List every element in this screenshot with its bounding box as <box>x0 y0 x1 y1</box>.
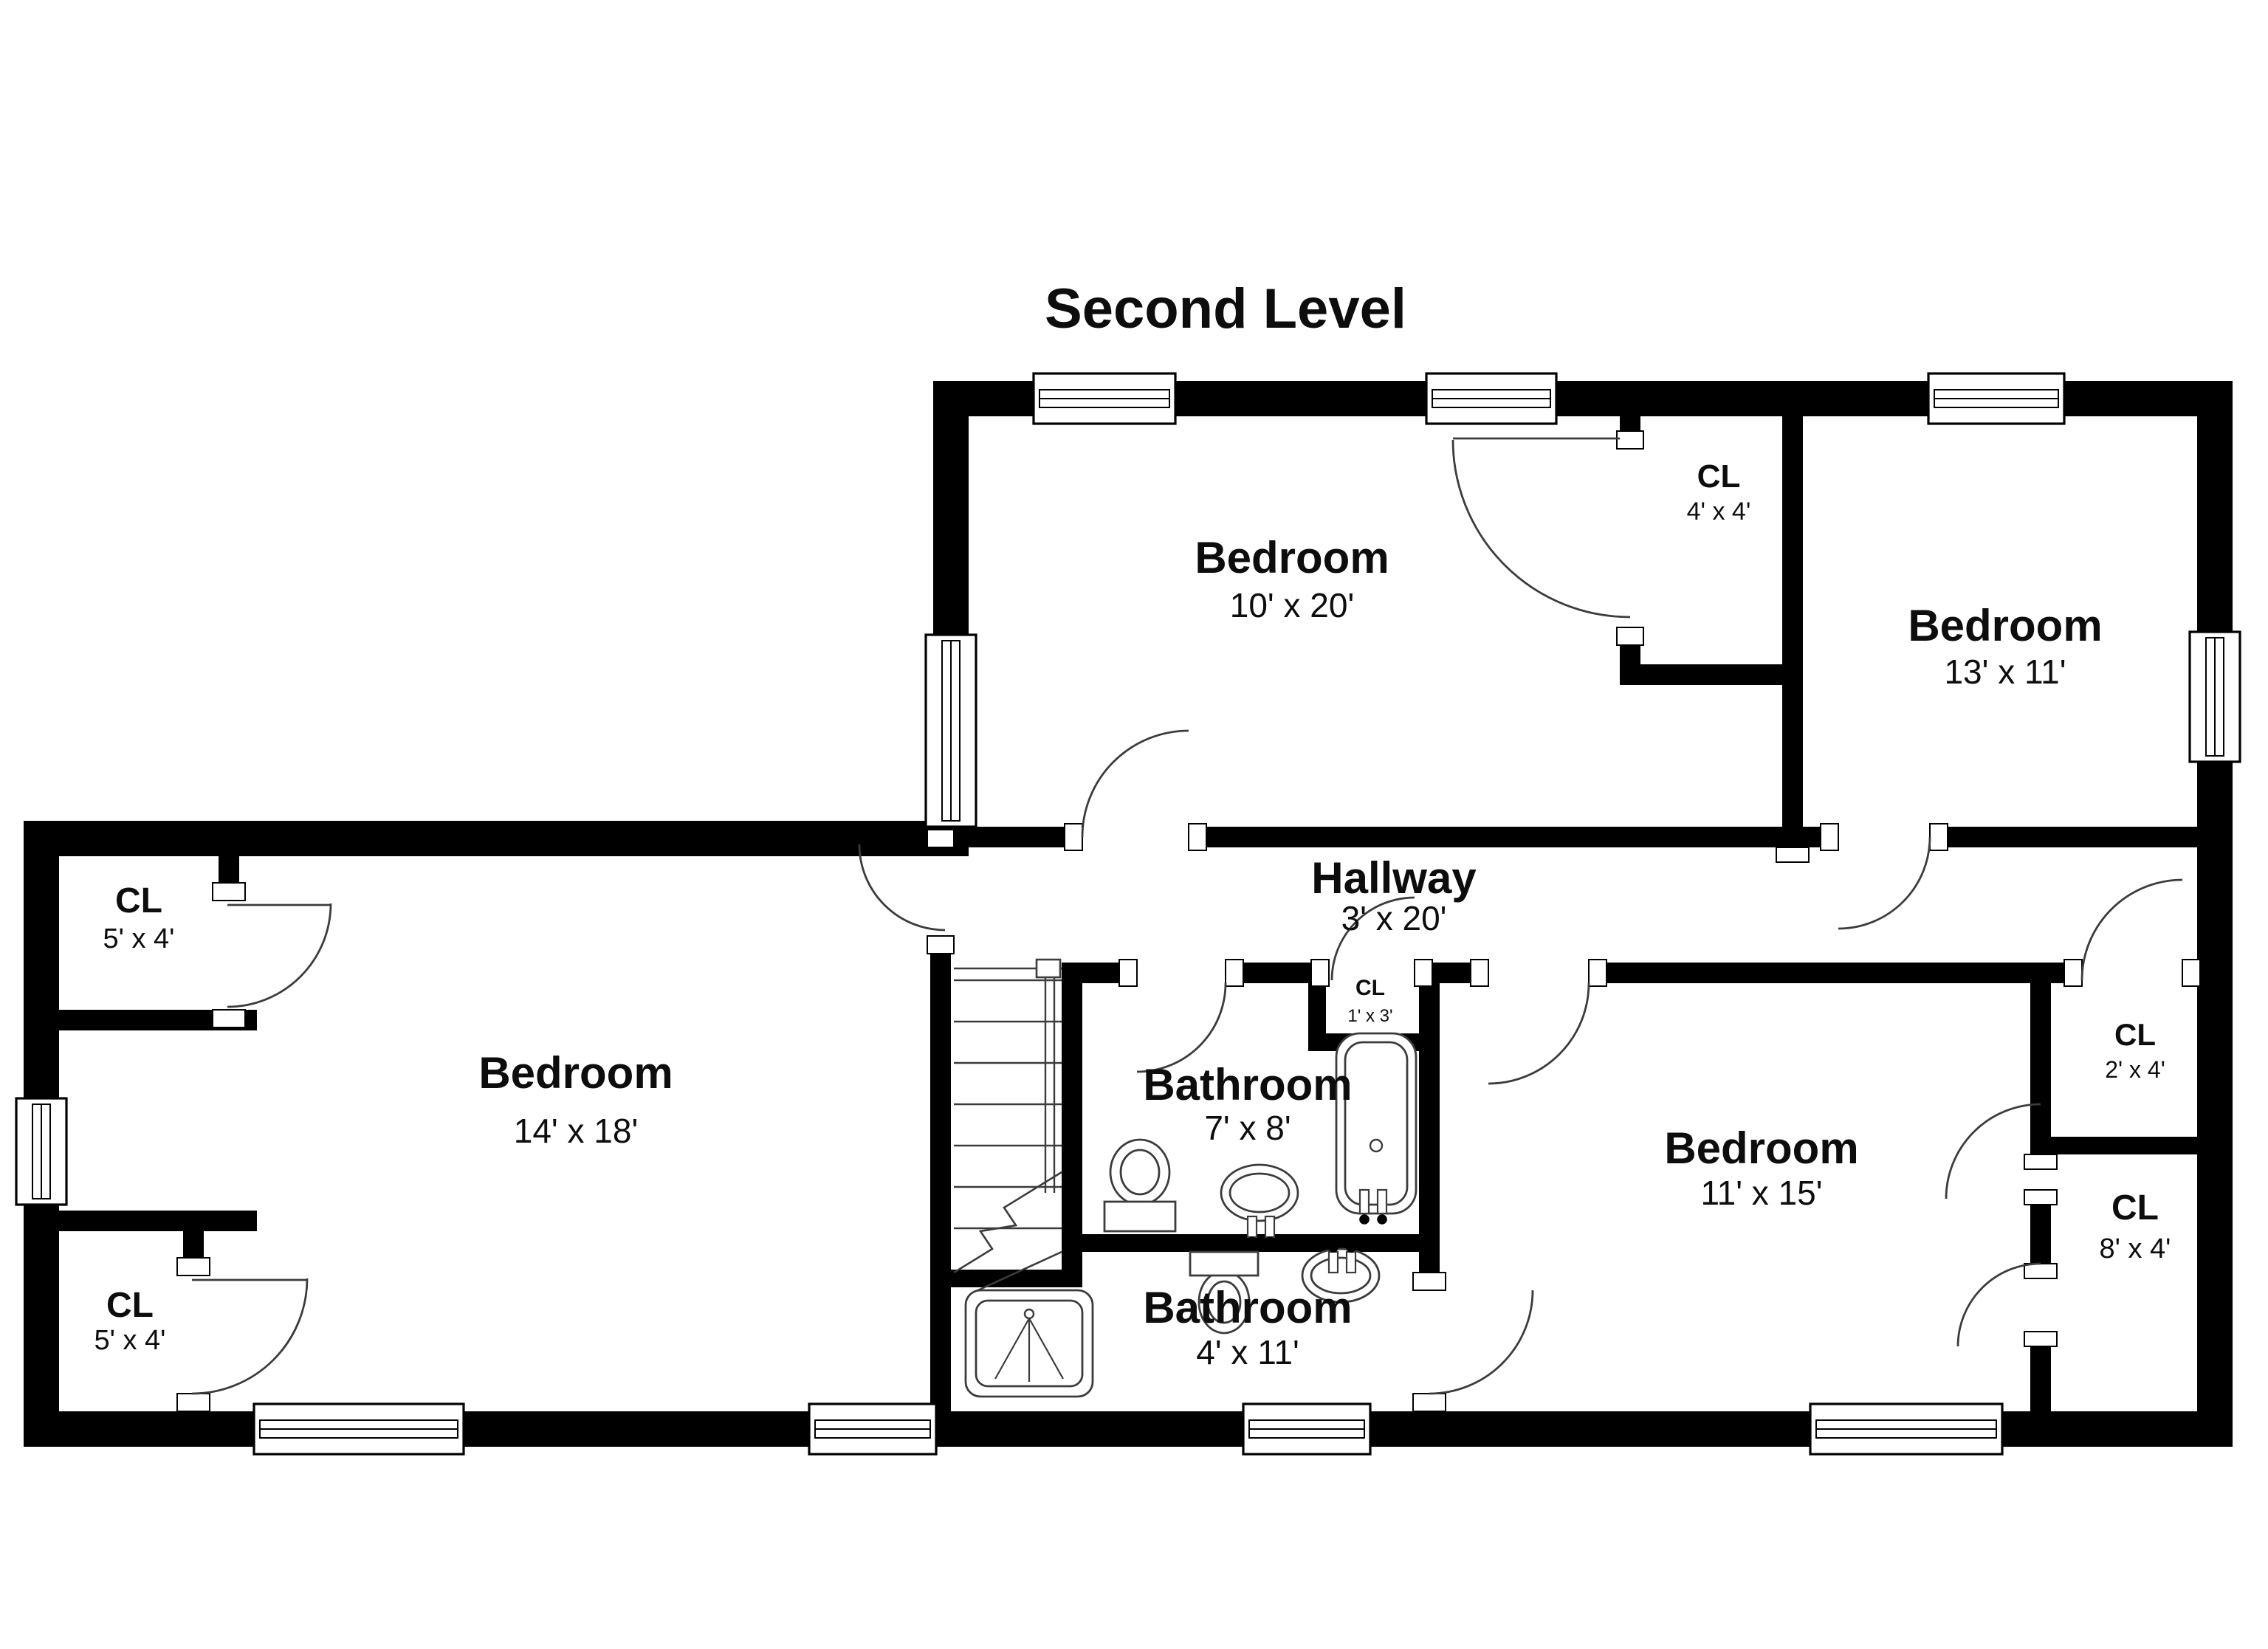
wall-cl4x4-bottom <box>1620 664 1803 685</box>
sink-bathroom-4x11-faucet <box>1329 1252 1338 1273</box>
sink-bathroom-4x11-faucet-dot <box>1346 1242 1356 1253</box>
room-dims-closet-2x4: 2' x 4' <box>2105 1056 2165 1083</box>
room-label-hallway: Hallway <box>1311 853 1477 903</box>
room-label-bedroom-top-right: Bedroom <box>1908 601 2102 650</box>
wall-cl8x4-left-b <box>2030 1346 2051 1411</box>
room-label-closet-4x4: CL <box>1697 458 1741 495</box>
door-jamb <box>2024 1190 2057 1205</box>
sink-bathroom-7x8-basin <box>1230 1174 1289 1212</box>
wall-stair-left-wall <box>930 936 951 1411</box>
room-dims-closet-5x4-bottom: 5' x 4' <box>94 1325 166 1356</box>
door-jamb <box>213 1010 245 1027</box>
sink-bathroom-7x8-faucet-dot <box>1265 1236 1275 1247</box>
sink-bathroom-4x11-faucet <box>1347 1252 1355 1273</box>
wall-outer-right <box>2197 381 2233 1447</box>
room-dims-bedroom-top-left: 10' x 20' <box>1230 586 1354 624</box>
plan-title: Second Level <box>1045 278 1406 340</box>
room-label-bedroom-top-left: Bedroom <box>1195 533 1389 582</box>
wall-bath-east-wall <box>1419 963 1440 1290</box>
door-jamb <box>2024 1264 2057 1278</box>
room-label-closet-8x4: CL <box>2111 1188 2159 1228</box>
door-jamb <box>2064 960 2082 986</box>
wall-cl4x4-left-b <box>1620 645 1640 664</box>
door-bedroom-13x11-swing-arc <box>1838 837 1930 929</box>
door-jamb <box>1413 1273 1446 1290</box>
door-closet-5x4-bottom-swing-arc <box>192 1278 307 1394</box>
room-dims-bedroom-top-right: 13' x 11' <box>1944 653 2066 691</box>
door-bedroom-10x20-swing-arc <box>1082 731 1189 837</box>
room-label-bathroom-7x8: Bathroom <box>1143 1060 1352 1109</box>
room-dims-closet-8x4: 8' x 4' <box>2100 1233 2171 1264</box>
door-jamb <box>213 883 245 901</box>
wall-stair-right-wall <box>1062 963 1082 1270</box>
room-dims-bathroom-7x8: 7' x 8' <box>1204 1109 1291 1147</box>
floorplan-sheet: Bedroom10' x 20'CL4' x 4'Bedroom13' x 11… <box>0 0 2268 1649</box>
wall-cl-bot-topwall <box>24 1211 257 1231</box>
door-jamb <box>1413 1394 1446 1411</box>
wall-cl2x4-bottom <box>2030 1137 2233 1154</box>
door-jamb <box>1776 847 1809 862</box>
bathtub-faucet-dot <box>1359 1214 1370 1225</box>
door-jamb <box>1119 960 1137 986</box>
room-label-bedroom-right: Bedroom <box>1664 1123 1858 1173</box>
wall-bath-divider <box>1082 1234 1440 1252</box>
room-dims-bedroom-right: 11' x 15' <box>1700 1174 1822 1212</box>
room-dims-closet-4x4: 4' x 4' <box>1687 498 1751 526</box>
door-jamb <box>1065 824 1082 850</box>
toilet-bathroom-7x8-bowl-inner <box>1121 1150 1159 1194</box>
door-closet-2x4-swing-arc <box>2082 880 2182 980</box>
floor-plan: Bedroom10' x 20'CL4' x 4'Bedroom13' x 11… <box>0 0 2268 1649</box>
room-label-closet-1x3: CL <box>1355 976 1385 1000</box>
room-dims-bedroom-left: 14' x 18' <box>514 1112 638 1150</box>
door-closet-8x4-upper-swing-arc <box>1946 1104 2041 1199</box>
room-label-bathroom-4x11: Bathroom <box>1143 1283 1352 1332</box>
sink-bathroom-7x8-faucet-dot <box>1247 1236 1257 1247</box>
wall-hall-south-d <box>1589 963 2082 983</box>
door-jamb <box>1471 960 1488 986</box>
door-jamb <box>1589 960 1606 986</box>
door-jamb <box>2024 1154 2057 1169</box>
door-jamb <box>927 936 954 954</box>
stair-newel-post <box>1037 960 1060 977</box>
wall-bedrooms-divider <box>1782 416 1803 847</box>
bathtub-inner <box>1345 1042 1407 1205</box>
sink-bathroom-7x8-faucet <box>1265 1216 1274 1237</box>
room-label-closet-5x4-top: CL <box>115 881 162 920</box>
wall-cl8x4-left-a <box>2030 1205 2051 1264</box>
room-label-closet-2x4: CL <box>2114 1017 2156 1052</box>
door-jamb <box>177 1394 210 1411</box>
bathtub-faucet <box>1378 1190 1386 1213</box>
door-jamb <box>1617 431 1643 449</box>
shower-drain <box>1025 1309 1034 1318</box>
toilet-bathroom-7x8-tank <box>1104 1202 1175 1231</box>
door-jamb <box>177 1258 210 1276</box>
bathtub-drain <box>1370 1140 1382 1151</box>
door-jamb <box>1415 960 1432 986</box>
door-closet-4x4-swing-arc <box>1453 440 1630 617</box>
door-jamb <box>2024 1332 2057 1346</box>
room-dims-bathroom-4x11: 4' x 11' <box>1196 1333 1299 1371</box>
toilet-bathroom-4x11-tank <box>1190 1252 1258 1276</box>
door-jamb <box>1189 824 1206 850</box>
wall-outer-left-section-top <box>24 821 969 856</box>
door-bathroom-7x8-swing-arc <box>1137 983 1226 1072</box>
room-label-closet-5x4-bottom: CL <box>106 1286 154 1325</box>
sink-bathroom-7x8-faucet <box>1248 1216 1257 1237</box>
plan-geometry <box>16 373 2240 1454</box>
room-label-bedroom-left: Bedroom <box>478 1048 673 1098</box>
room-dims-closet-5x4-top: 5' x 4' <box>103 923 175 954</box>
door-bedroom-14x18-swing-arc <box>859 844 945 930</box>
wall-hall-north-d <box>1930 827 2197 847</box>
door-jamb <box>1617 627 1643 645</box>
door-bedroom-11x15-swing-arc <box>1488 983 1589 1084</box>
door-closet-5x4-top-swing-arc <box>227 903 331 1007</box>
bathtub-faucet-dot <box>1377 1214 1387 1225</box>
door-bathroom-4x11-swing-arc <box>1429 1290 1533 1394</box>
door-jamb <box>1821 824 1838 850</box>
door-jamb <box>1226 960 1243 986</box>
room-dims-hallway: 3' x 20' <box>1341 899 1447 937</box>
wall-hall-north-b <box>1189 827 1782 847</box>
wall-cl2x4-left <box>2030 983 2051 1154</box>
sink-bathroom-4x11-faucet-dot <box>1328 1242 1339 1253</box>
door-jamb <box>1311 960 1329 986</box>
door-jamb <box>1930 824 1948 850</box>
room-dims-closet-1x3: 1' x 3' <box>1347 1006 1392 1026</box>
door-jamb <box>2182 960 2200 986</box>
bathtub-faucet <box>1360 1190 1369 1213</box>
door-jamb <box>927 830 954 847</box>
